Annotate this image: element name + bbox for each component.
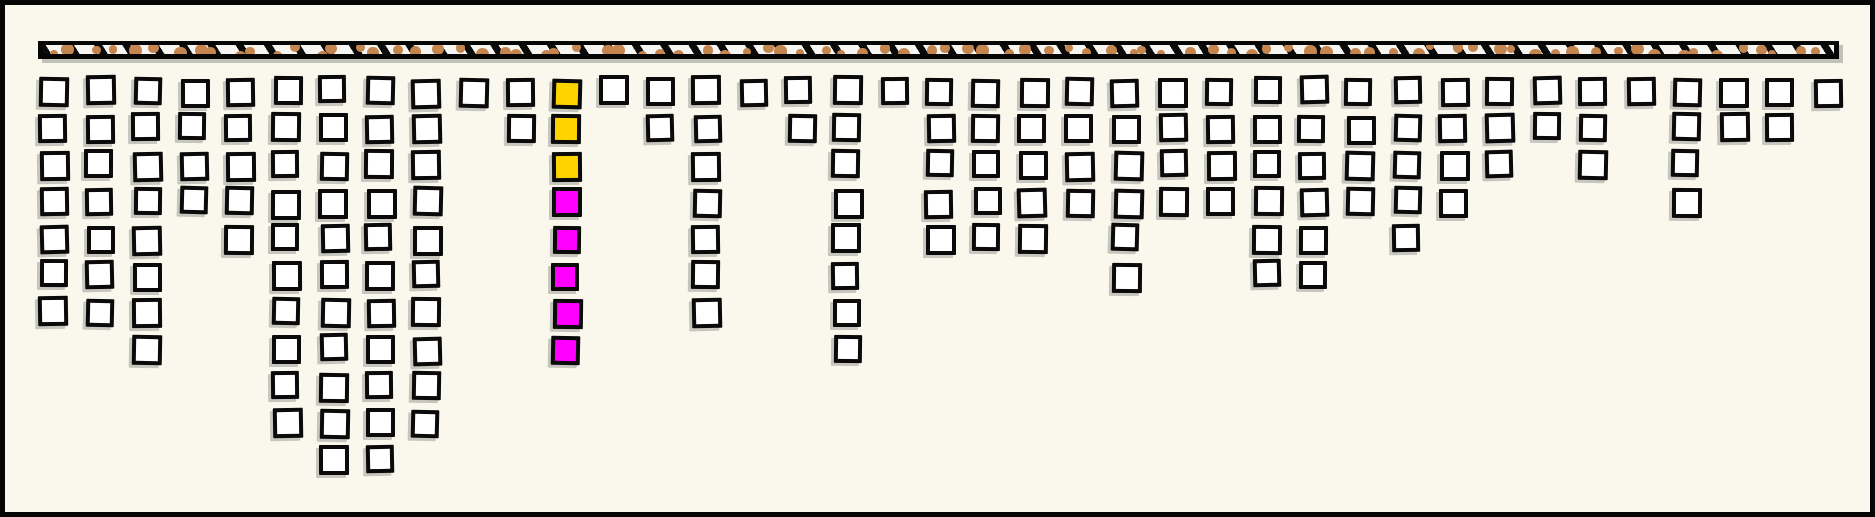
cell xyxy=(1533,112,1561,140)
cell xyxy=(881,77,909,105)
ceiling-strip-hatch xyxy=(43,45,1834,54)
cell xyxy=(1485,150,1514,179)
cell xyxy=(320,152,349,181)
strip-dot xyxy=(796,49,804,54)
strip-dot xyxy=(774,45,787,54)
magenta-cell xyxy=(551,263,579,291)
cell xyxy=(1253,150,1281,178)
cell xyxy=(320,224,350,254)
cell xyxy=(84,188,113,217)
magenta-cell xyxy=(553,299,583,329)
strip-dot xyxy=(1005,49,1015,54)
cell xyxy=(1344,151,1375,182)
cell xyxy=(412,336,441,365)
strip-dot xyxy=(1453,45,1463,53)
cell xyxy=(646,114,675,143)
strip-dot xyxy=(763,45,773,53)
strip-dot xyxy=(673,50,685,54)
cell xyxy=(411,410,440,439)
cell xyxy=(411,78,442,109)
strip-dot xyxy=(962,45,974,54)
strip-dot xyxy=(1689,48,1698,54)
cell xyxy=(1440,77,1469,106)
strip-dot xyxy=(1468,45,1478,52)
cell xyxy=(926,225,956,255)
cell xyxy=(224,114,252,142)
cell xyxy=(366,408,395,437)
cell xyxy=(320,333,349,362)
cell xyxy=(271,223,299,251)
cell xyxy=(320,260,349,289)
magenta-cell xyxy=(553,226,581,254)
strip-dot xyxy=(1413,48,1426,54)
cell xyxy=(1813,78,1843,108)
strip-dot xyxy=(612,45,625,54)
cell xyxy=(1113,151,1144,182)
cell xyxy=(366,445,394,473)
cell xyxy=(1438,113,1468,143)
cell xyxy=(132,298,162,328)
strip-dot xyxy=(356,45,366,52)
cell xyxy=(1253,115,1282,144)
cell xyxy=(972,150,1000,178)
strip-dot xyxy=(1106,45,1117,54)
gold-cell xyxy=(551,114,581,144)
strip-dot xyxy=(1019,45,1032,54)
cell xyxy=(927,113,957,143)
cell xyxy=(318,189,348,219)
cell xyxy=(1205,78,1233,106)
cell xyxy=(273,407,303,437)
strip-dot xyxy=(500,47,510,54)
strip-dot xyxy=(857,48,867,54)
cell xyxy=(40,259,68,287)
cell xyxy=(1254,76,1282,104)
cell xyxy=(1297,115,1325,143)
cell xyxy=(693,114,721,142)
cell xyxy=(1020,78,1050,108)
strip-dot xyxy=(1227,48,1236,54)
cell xyxy=(226,152,256,182)
cell xyxy=(224,225,254,255)
cell xyxy=(226,78,255,107)
cell xyxy=(1207,150,1237,180)
cell xyxy=(1299,226,1328,255)
strip-dot xyxy=(245,47,255,54)
strip-dot xyxy=(410,46,422,54)
cell xyxy=(833,298,861,326)
strip-dot xyxy=(719,50,731,54)
cell xyxy=(1440,151,1470,181)
cell xyxy=(1720,112,1751,143)
cell xyxy=(1300,75,1330,105)
cell xyxy=(646,77,675,106)
gold-cell xyxy=(552,152,582,182)
cell xyxy=(1579,113,1607,141)
cell xyxy=(1578,77,1607,106)
cell xyxy=(1299,261,1327,289)
cell xyxy=(178,112,207,141)
cell xyxy=(1019,151,1048,180)
strip-dot xyxy=(50,50,58,54)
cell xyxy=(1765,78,1794,107)
cell xyxy=(412,186,442,216)
cell xyxy=(971,114,1000,143)
cell xyxy=(85,115,114,144)
cell xyxy=(787,114,816,143)
strip-dot xyxy=(1350,48,1361,54)
cell xyxy=(692,189,721,218)
strip-dot xyxy=(432,45,444,54)
cell xyxy=(321,298,352,329)
magenta-cell xyxy=(551,336,581,366)
cell xyxy=(1017,114,1046,143)
cell xyxy=(1159,187,1190,218)
strip-dot xyxy=(1551,49,1560,54)
strip-dot xyxy=(1137,46,1146,55)
cell xyxy=(974,187,1002,215)
cell xyxy=(972,222,1000,250)
cell xyxy=(272,335,301,364)
cell xyxy=(367,299,397,329)
strip-dot xyxy=(1185,47,1196,54)
cell xyxy=(1064,114,1093,143)
cell xyxy=(1114,188,1145,219)
strip-dot xyxy=(655,49,666,54)
cell xyxy=(1110,78,1140,108)
cell xyxy=(1577,150,1608,181)
strip-dot xyxy=(1756,45,1767,54)
cell xyxy=(924,189,953,218)
strip-dot xyxy=(1566,46,1579,54)
cell xyxy=(832,112,861,141)
cell xyxy=(367,189,397,219)
cell xyxy=(271,371,300,400)
cell xyxy=(1017,188,1047,218)
strip-dot xyxy=(456,45,465,53)
strip-dot xyxy=(1648,49,1661,54)
strip-dot xyxy=(235,51,246,54)
cell xyxy=(1672,188,1703,219)
cell xyxy=(1252,224,1282,254)
cell xyxy=(133,263,162,292)
cell xyxy=(1206,187,1235,216)
strip-dot xyxy=(1208,45,1219,54)
strip-dot xyxy=(1739,45,1748,53)
cell xyxy=(134,76,163,105)
cell xyxy=(181,78,210,107)
strip-dot xyxy=(1796,46,1806,54)
strip-dot xyxy=(837,50,845,54)
strip-dot xyxy=(148,45,158,53)
cell xyxy=(39,77,69,107)
gold-cell xyxy=(552,78,583,109)
cell xyxy=(271,150,299,178)
cell xyxy=(274,76,303,105)
cell xyxy=(599,75,629,105)
strip-dot xyxy=(1591,47,1601,54)
cell xyxy=(1392,224,1421,253)
strip-dot xyxy=(1065,45,1073,52)
strip-dot xyxy=(703,45,713,54)
strip-dot xyxy=(1246,49,1258,54)
cell xyxy=(1298,152,1326,180)
cell xyxy=(691,260,720,289)
cell xyxy=(86,299,114,327)
cell xyxy=(1671,149,1699,177)
cell xyxy=(1158,78,1188,108)
strip-dot xyxy=(1494,45,1506,54)
cell xyxy=(831,149,860,178)
cell xyxy=(1346,187,1376,217)
cell xyxy=(1394,114,1422,142)
cell xyxy=(834,189,864,219)
strip-dot xyxy=(1529,49,1541,54)
cell xyxy=(1066,189,1095,218)
ceiling-strip xyxy=(38,41,1839,59)
cell xyxy=(131,112,160,141)
cell xyxy=(925,78,954,107)
cell xyxy=(1439,189,1468,218)
cell xyxy=(1159,113,1188,142)
cell xyxy=(366,76,396,106)
cell xyxy=(319,372,350,403)
cell xyxy=(84,149,113,178)
cell xyxy=(1485,77,1515,107)
cell xyxy=(1344,78,1373,107)
cell xyxy=(1765,113,1795,143)
strip-dot xyxy=(205,47,216,54)
cell xyxy=(410,150,440,180)
cell xyxy=(87,226,115,254)
strip-dot xyxy=(1389,48,1398,54)
cell xyxy=(1110,222,1138,250)
strip-dot xyxy=(129,45,142,54)
cell xyxy=(833,75,863,105)
cell xyxy=(40,150,71,181)
strip-dot xyxy=(927,45,938,54)
cell xyxy=(1017,224,1048,255)
strip-dot xyxy=(1711,50,1723,54)
cell xyxy=(691,151,721,181)
strip-dot xyxy=(572,45,581,52)
cell xyxy=(692,298,722,328)
strip-dot xyxy=(1364,47,1375,54)
cell xyxy=(411,371,441,401)
cell xyxy=(506,78,535,107)
cell xyxy=(831,262,859,290)
strip-dot xyxy=(290,45,300,52)
cell xyxy=(40,187,69,216)
cell xyxy=(365,371,393,399)
cell xyxy=(272,297,301,326)
cell xyxy=(365,261,395,291)
strip-dot xyxy=(880,45,891,54)
strip-dot xyxy=(476,48,489,54)
strip-dot xyxy=(1811,47,1820,54)
cell xyxy=(1394,76,1423,105)
strip-dot xyxy=(976,45,988,54)
cell xyxy=(412,260,440,288)
strip-dot xyxy=(1320,46,1333,54)
cell xyxy=(84,260,114,290)
strip-dot xyxy=(1614,47,1623,54)
cell xyxy=(413,226,443,256)
strip-dot xyxy=(940,45,950,53)
cell xyxy=(365,115,394,144)
cell xyxy=(783,76,812,105)
strip-dot xyxy=(1157,50,1166,54)
cell xyxy=(1671,112,1701,142)
cell xyxy=(739,78,767,106)
cell xyxy=(272,261,302,291)
cell xyxy=(1112,263,1142,293)
cell xyxy=(1112,115,1141,144)
cell xyxy=(320,409,351,440)
cell xyxy=(1672,78,1701,107)
cell xyxy=(925,149,953,177)
cell xyxy=(225,186,254,215)
strip-dot xyxy=(92,46,101,54)
cell xyxy=(971,79,1000,108)
cell xyxy=(1299,188,1329,218)
strip-dot xyxy=(1768,50,1776,54)
cell xyxy=(366,335,395,364)
cell xyxy=(1532,76,1562,106)
cell xyxy=(134,187,162,215)
cell xyxy=(410,297,440,327)
cell xyxy=(180,152,210,182)
strip-dot xyxy=(367,47,379,54)
strip-dot xyxy=(510,49,522,54)
cell xyxy=(364,223,392,251)
cell xyxy=(1394,186,1423,215)
cell xyxy=(39,224,69,254)
strip-dot xyxy=(898,48,910,54)
cell xyxy=(506,114,535,143)
cell xyxy=(86,75,117,106)
strip-dot xyxy=(1507,45,1515,53)
cell xyxy=(271,112,301,142)
cell xyxy=(38,114,68,144)
cell xyxy=(412,114,443,145)
strip-dot xyxy=(638,51,647,54)
strip-dot xyxy=(325,45,337,54)
magenta-cell xyxy=(552,187,582,217)
strip-dot xyxy=(109,45,118,54)
cell xyxy=(1627,77,1657,107)
cell xyxy=(1719,78,1749,108)
strip-dot xyxy=(393,45,404,54)
cell xyxy=(691,75,721,105)
strip-dot xyxy=(743,48,751,54)
cell xyxy=(459,78,489,108)
cell xyxy=(1485,112,1515,142)
cell xyxy=(319,445,349,475)
cell xyxy=(1159,149,1188,178)
cell xyxy=(1064,77,1093,106)
cell xyxy=(1347,116,1376,145)
strip-dot xyxy=(1082,48,1091,54)
strip-dot xyxy=(61,45,74,54)
cell xyxy=(1254,186,1284,216)
chart-canvas xyxy=(0,0,1875,517)
cell xyxy=(1065,151,1095,181)
cell xyxy=(690,225,719,254)
cell xyxy=(271,189,302,220)
cell xyxy=(132,152,162,182)
cell xyxy=(319,113,348,142)
cell xyxy=(1392,151,1421,180)
strip-dot xyxy=(1284,45,1293,52)
strip-dot xyxy=(822,46,831,54)
cell xyxy=(38,296,68,326)
strip-dot xyxy=(1262,45,1271,54)
cell xyxy=(1253,259,1281,287)
cell xyxy=(132,225,163,256)
cell xyxy=(364,149,394,179)
cell xyxy=(131,334,161,364)
strip-dot xyxy=(1426,45,1434,50)
strip-dot xyxy=(548,48,559,54)
strip-dot xyxy=(1631,45,1644,54)
strip-dot xyxy=(1304,45,1317,54)
cell xyxy=(318,75,346,103)
strip-dot xyxy=(174,47,187,54)
cell xyxy=(831,223,861,253)
cell xyxy=(180,186,209,215)
cell xyxy=(834,335,862,363)
strip-dot xyxy=(1044,46,1054,54)
cell xyxy=(1206,115,1236,145)
strip-dot xyxy=(273,51,283,54)
